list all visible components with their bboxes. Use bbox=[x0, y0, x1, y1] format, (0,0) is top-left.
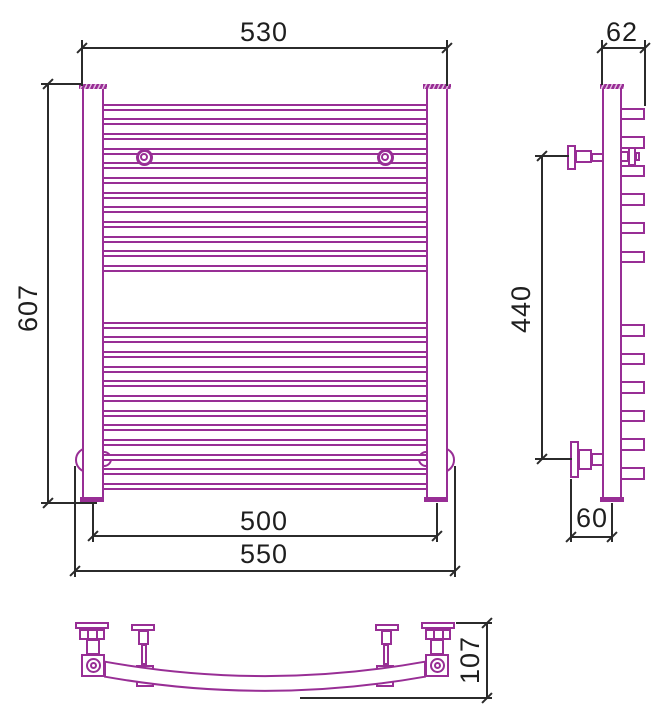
front-rung bbox=[104, 483, 426, 490]
bottom-foot-left bbox=[136, 665, 154, 687]
nut-facet bbox=[442, 630, 444, 639]
bottom-left-bracket-post bbox=[138, 630, 149, 645]
dim-440-label: 440 bbox=[506, 259, 536, 359]
dim-530-label: 530 bbox=[214, 17, 314, 47]
front-rung bbox=[104, 366, 426, 373]
front-left-post bbox=[82, 85, 104, 499]
side-loop-stub bbox=[620, 381, 645, 394]
bottom-left-flange bbox=[75, 622, 109, 629]
front-rung bbox=[104, 351, 426, 358]
dim-550-ext-right bbox=[454, 466, 456, 577]
dim-607-line bbox=[47, 83, 49, 504]
front-left-post-top-cap bbox=[79, 84, 107, 89]
dim-60-label: 60 bbox=[542, 503, 642, 533]
bottom-right-flange bbox=[421, 622, 455, 629]
side-loop-stub bbox=[620, 165, 645, 178]
front-rung bbox=[104, 221, 426, 228]
front-rung bbox=[104, 133, 426, 140]
side-post-bottom-cap bbox=[600, 497, 624, 502]
drawing-canvas: 530 607 500 550 bbox=[0, 0, 666, 720]
side-lower-bracket-arm bbox=[578, 449, 592, 470]
bottom-right-stem bbox=[430, 639, 444, 655]
dim-607-label: 607 bbox=[13, 258, 43, 358]
dim-550-ext-left bbox=[74, 466, 76, 577]
side-loop-stub bbox=[620, 324, 645, 337]
front-rung bbox=[104, 192, 426, 199]
bottom-right-valve-hole bbox=[434, 662, 441, 669]
front-rung bbox=[104, 454, 426, 461]
dim-107-line bbox=[486, 622, 488, 699]
dim-550-label: 550 bbox=[214, 539, 314, 569]
front-rung bbox=[104, 395, 426, 402]
front-rung bbox=[104, 206, 426, 213]
front-rung bbox=[104, 265, 426, 272]
front-rung bbox=[104, 380, 426, 387]
side-loop-stub bbox=[620, 438, 645, 451]
side-loop-stub bbox=[620, 193, 645, 206]
nut-facet bbox=[433, 630, 435, 639]
front-rung bbox=[104, 410, 426, 417]
bottom-foot-right bbox=[376, 665, 394, 687]
side-post bbox=[602, 85, 622, 499]
dim-500-label: 500 bbox=[214, 506, 314, 536]
front-rung bbox=[104, 439, 426, 446]
front-rung bbox=[104, 104, 426, 111]
front-rung bbox=[104, 336, 426, 343]
bottom-right-bracket-pin bbox=[383, 644, 389, 665]
front-rung bbox=[104, 236, 426, 243]
dim-107-label: 107 bbox=[455, 610, 485, 710]
front-right-post-bottom-cap bbox=[424, 497, 448, 502]
side-loop-stub bbox=[620, 108, 645, 121]
front-rung bbox=[104, 162, 426, 169]
nut-facet bbox=[87, 630, 89, 639]
side-loop-stub bbox=[620, 410, 645, 423]
bottom-right-bracket-post bbox=[381, 630, 392, 645]
front-rung bbox=[104, 468, 426, 475]
dim-62-line bbox=[602, 47, 645, 49]
bottom-left-stem bbox=[86, 639, 100, 655]
front-rung bbox=[104, 250, 426, 257]
side-loop-stub bbox=[620, 251, 645, 264]
side-upper-bracket-arm bbox=[575, 150, 592, 163]
front-rung bbox=[104, 177, 426, 184]
front-wall-bracket-right-hole bbox=[381, 153, 389, 161]
side-loop-stub bbox=[620, 467, 645, 480]
dim-440-line bbox=[541, 155, 543, 460]
side-post-top-cap bbox=[600, 84, 624, 89]
front-rung bbox=[104, 424, 426, 431]
bottom-left-bracket-pin bbox=[141, 644, 147, 665]
front-wall-bracket-left-hole bbox=[140, 153, 148, 161]
side-upper-bracket-rod bbox=[591, 153, 604, 162]
side-vent-valve-tip bbox=[635, 152, 640, 161]
front-rung bbox=[104, 118, 426, 125]
dim-60-line bbox=[570, 536, 613, 538]
side-lower-bracket-rod bbox=[591, 453, 604, 466]
nut-facet bbox=[96, 630, 98, 639]
front-rung bbox=[104, 322, 426, 329]
dim-530-line bbox=[82, 47, 448, 49]
front-right-post bbox=[426, 85, 448, 499]
side-loop-stub bbox=[620, 222, 645, 235]
dim-550-line bbox=[75, 570, 455, 572]
bottom-left-valve-hole bbox=[90, 662, 97, 669]
dim-62-label: 62 bbox=[572, 17, 666, 47]
side-loop-stub bbox=[620, 353, 645, 366]
